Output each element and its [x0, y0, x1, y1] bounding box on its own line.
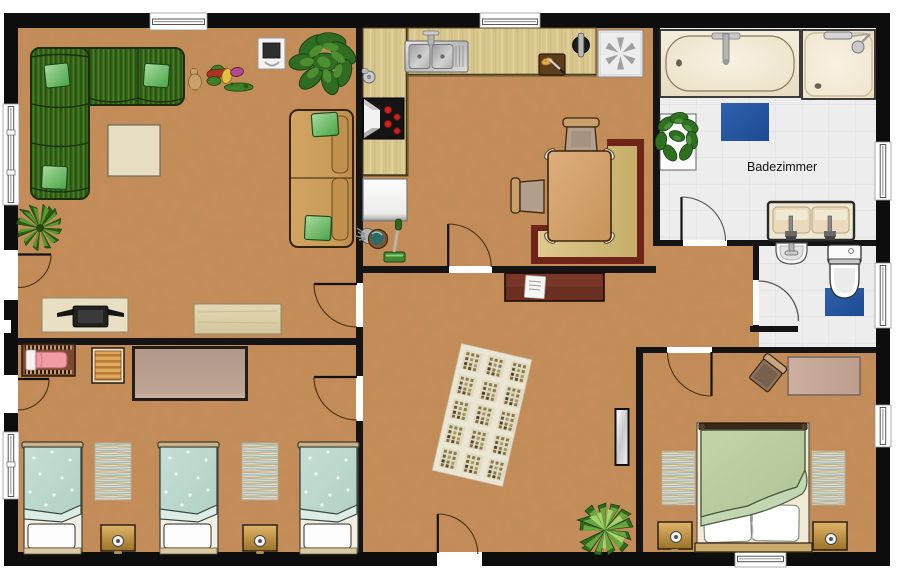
svg-text:Badezimmer: Badezimmer	[747, 160, 817, 174]
